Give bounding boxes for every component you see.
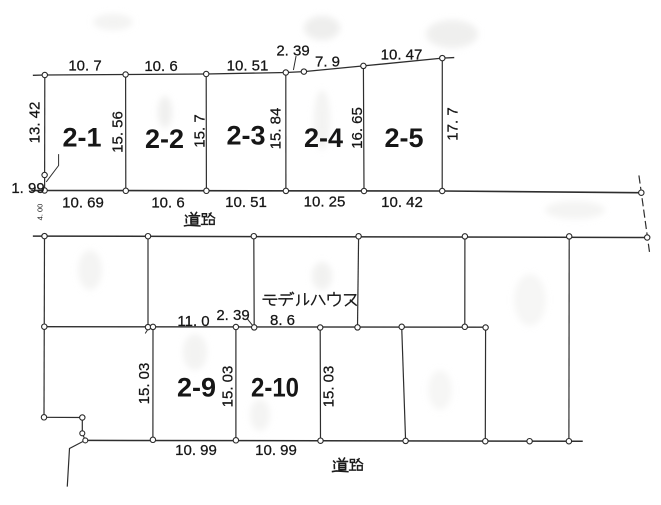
svg-text:10. 6: 10. 6	[144, 58, 177, 75]
svg-text:10. 47: 10. 47	[381, 47, 423, 64]
svg-text:2-2: 2-2	[145, 124, 184, 154]
svg-text:16. 65: 16. 65	[349, 107, 366, 149]
svg-text:15. 03: 15. 03	[321, 366, 338, 408]
svg-text:10. 51: 10. 51	[225, 194, 267, 211]
svg-text:10. 99: 10. 99	[255, 442, 297, 459]
svg-text:2. 39: 2. 39	[276, 43, 309, 60]
svg-text:2-9: 2-9	[177, 373, 216, 403]
svg-text:2-4: 2-4	[304, 123, 343, 153]
svg-text:10. 7: 10. 7	[68, 58, 101, 75]
svg-text:8. 6: 8. 6	[270, 312, 295, 329]
svg-text:10. 69: 10. 69	[62, 195, 104, 212]
svg-text:2-10: 2-10	[251, 373, 299, 403]
svg-text:2-1: 2-1	[62, 123, 101, 153]
svg-text:15. 84: 15. 84	[268, 108, 285, 150]
svg-text:11. 0: 11. 0	[177, 313, 209, 330]
svg-text:2-5: 2-5	[384, 123, 423, 153]
svg-text:7. 9: 7. 9	[315, 54, 340, 71]
svg-text:15. 03: 15. 03	[220, 366, 237, 408]
svg-text:15. 56: 15. 56	[110, 111, 127, 153]
svg-text:13. 42: 13. 42	[27, 102, 44, 144]
svg-text:10. 42: 10. 42	[381, 194, 423, 211]
svg-text:2-3: 2-3	[226, 121, 265, 151]
svg-text:15. 03: 15. 03	[136, 363, 153, 405]
svg-text:10. 6: 10. 6	[151, 195, 184, 212]
svg-text:4. 00: 4. 00	[36, 204, 45, 221]
svg-text:10. 25: 10. 25	[304, 194, 346, 211]
svg-text:1. 99: 1. 99	[11, 180, 44, 197]
svg-text:17. 7: 17. 7	[445, 107, 462, 140]
svg-text:10. 51: 10. 51	[227, 58, 269, 75]
svg-text:15. 7: 15. 7	[192, 114, 209, 147]
svg-text:2. 39: 2. 39	[216, 307, 249, 324]
svg-text:10. 99: 10. 99	[175, 442, 217, 459]
